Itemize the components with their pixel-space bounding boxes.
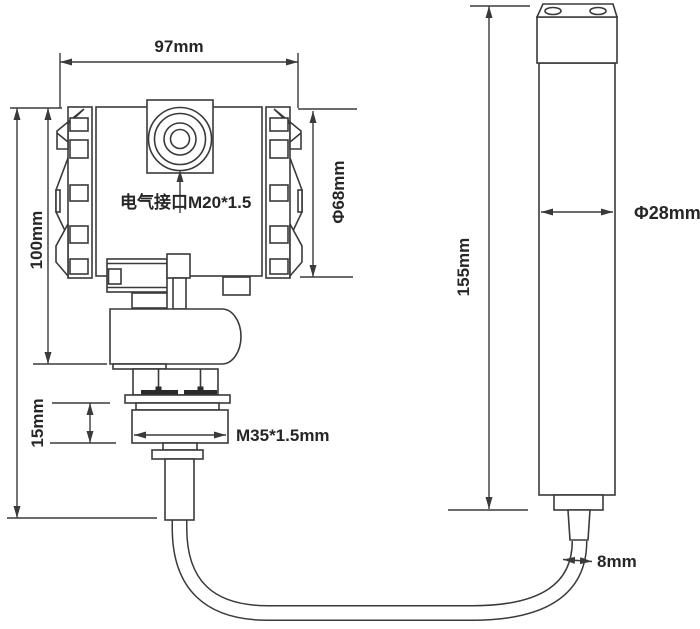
left-end-cap bbox=[56, 107, 92, 278]
process-flange bbox=[125, 369, 230, 410]
probe-body bbox=[539, 63, 615, 495]
dim-body-diameter-label: Φ68mm bbox=[329, 160, 348, 223]
probe-cap bbox=[537, 4, 617, 63]
transmitter-figure bbox=[56, 100, 302, 520]
dim-thread-spec-label: M35*1.5mm bbox=[236, 426, 330, 445]
probe-cable-gland bbox=[568, 510, 590, 540]
dim-cable-diameter-line bbox=[563, 560, 592, 562]
dim-probe-diameter-label: Φ28mm bbox=[634, 203, 700, 223]
electrical-port-label: 电气接口M20*1.5 bbox=[120, 192, 251, 212]
dim-height-label: 100mm bbox=[27, 211, 46, 270]
cable-collar bbox=[152, 450, 203, 459]
dim-probe-length-label: 155mm bbox=[454, 238, 473, 297]
probe-figure bbox=[537, 4, 617, 540]
dim-thread-height-label: 15mm bbox=[28, 398, 47, 447]
dimension-drawing: 97mm 100mm Φ68mm 电气接口M20*1.5 15mm M35*1.… bbox=[0, 0, 700, 629]
drawing-svg: 97mm 100mm Φ68mm 电气接口M20*1.5 15mm M35*1.… bbox=[0, 0, 700, 629]
dim-cable-diameter-label: 8mm bbox=[597, 552, 637, 571]
dim-width-label: 97mm bbox=[154, 37, 203, 56]
sensor-yoke bbox=[110, 309, 241, 364]
electrical-port bbox=[147, 100, 213, 173]
cable-pipe bbox=[165, 459, 194, 520]
thread-neck bbox=[163, 443, 197, 450]
right-end-cap bbox=[266, 107, 302, 278]
hex-thread-body bbox=[132, 410, 228, 443]
connection-cable bbox=[180, 510, 580, 613]
probe-collar bbox=[554, 495, 603, 510]
